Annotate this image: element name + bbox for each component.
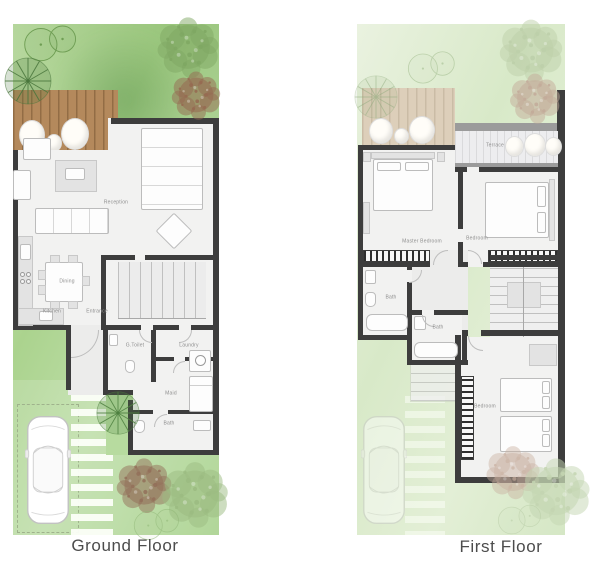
exterior-stair bbox=[410, 360, 456, 402]
maid-bed bbox=[189, 376, 213, 412]
room-label-reception: Reception bbox=[104, 201, 128, 206]
room-label-bedroom-front: Bedroom bbox=[466, 237, 488, 242]
wall-segment bbox=[358, 262, 430, 267]
room-label-maid: Maid bbox=[165, 392, 177, 397]
sofa bbox=[35, 208, 109, 234]
tree-palm-icon bbox=[95, 390, 141, 436]
beanbag bbox=[524, 133, 546, 157]
beanbag bbox=[545, 137, 562, 156]
wall-segment bbox=[101, 255, 106, 330]
room-label-bath: Bath bbox=[163, 422, 174, 427]
stove-burner bbox=[20, 279, 25, 284]
wash-basin bbox=[109, 334, 118, 346]
room-label-bath-shared: Bath bbox=[432, 326, 443, 331]
wall-segment bbox=[458, 167, 463, 229]
chair bbox=[50, 255, 60, 263]
room-label-terrace: Terrace bbox=[486, 144, 504, 149]
wall-segment bbox=[358, 145, 455, 150]
wardrobe bbox=[461, 376, 474, 460]
wash-basin bbox=[193, 420, 211, 431]
pillow bbox=[542, 396, 550, 409]
pillow bbox=[405, 162, 429, 171]
tree-outline-icon bbox=[495, 502, 547, 538]
chair bbox=[68, 301, 78, 309]
wall-segment bbox=[145, 255, 219, 260]
beanbag bbox=[61, 118, 89, 150]
room-label-g-toilet: G.Toilet bbox=[126, 344, 145, 349]
dresser bbox=[529, 344, 557, 366]
wall-segment bbox=[358, 145, 363, 340]
stove-burner bbox=[26, 272, 31, 277]
pillow bbox=[377, 162, 401, 171]
pillow bbox=[542, 381, 550, 394]
bed-headboard bbox=[371, 152, 435, 159]
ground-floor-plan: Reception Dining Kitchen Entrance G.Toil… bbox=[13, 24, 219, 535]
room-label-laundry: Laundry bbox=[179, 344, 198, 349]
room-label-entrance: Entrance bbox=[86, 310, 108, 315]
chair bbox=[38, 270, 46, 280]
wall-segment bbox=[191, 325, 219, 330]
ground-floor-caption: Ground Floor bbox=[35, 536, 215, 556]
wall-segment bbox=[108, 325, 141, 330]
armchair bbox=[23, 138, 51, 160]
room-label-dining: Dining bbox=[59, 280, 74, 285]
room-label-master-bedroom: Master Bedroom bbox=[402, 240, 442, 245]
first-floor-caption: First Floor bbox=[411, 537, 591, 557]
wall-segment bbox=[490, 255, 558, 260]
kitchen-sink bbox=[20, 244, 31, 260]
toilet bbox=[365, 292, 376, 307]
wash-basin bbox=[365, 270, 376, 284]
toilet bbox=[125, 360, 135, 373]
beanbag bbox=[369, 118, 393, 144]
wall-segment bbox=[483, 262, 558, 267]
wall-segment bbox=[156, 357, 174, 361]
chair bbox=[68, 255, 78, 263]
bathtub bbox=[414, 342, 458, 358]
room-label-kitchen: Kitchen bbox=[43, 310, 61, 315]
table-decor bbox=[65, 168, 85, 180]
wall-segment bbox=[103, 325, 108, 395]
dresser bbox=[363, 202, 370, 234]
chair bbox=[38, 285, 46, 295]
nightstand bbox=[363, 152, 371, 162]
nightstand bbox=[437, 152, 445, 162]
wall-segment bbox=[407, 262, 412, 270]
first-floor-plan: Terrace Master Bedroom Bedroom Bath Bath… bbox=[357, 24, 565, 535]
wardrobe bbox=[363, 250, 430, 262]
stair-landing bbox=[507, 282, 541, 308]
armchair bbox=[13, 170, 31, 200]
tree-palm-icon bbox=[3, 56, 53, 106]
tree-foliage-icon bbox=[165, 64, 227, 126]
wall-segment bbox=[462, 330, 467, 365]
wall-segment bbox=[434, 310, 468, 315]
tree-outline-icon bbox=[405, 48, 461, 88]
sofa-large bbox=[141, 128, 203, 210]
wall-segment bbox=[479, 167, 558, 172]
bed-headboard bbox=[549, 179, 555, 241]
wall-segment bbox=[105, 255, 135, 260]
room-label-bath-master: Bath bbox=[385, 296, 396, 301]
wall-segment bbox=[455, 335, 461, 483]
beanbag bbox=[409, 116, 435, 144]
stove-burner bbox=[26, 279, 31, 284]
car-top-view bbox=[25, 410, 71, 530]
stove-burner bbox=[20, 272, 25, 277]
wall-segment bbox=[213, 118, 219, 455]
tree-foliage-icon bbox=[503, 66, 567, 130]
wall-segment bbox=[153, 325, 179, 330]
washer-drum bbox=[195, 355, 206, 366]
wall-segment bbox=[358, 335, 412, 340]
room-label-bedroom-back: Bedroom bbox=[474, 405, 496, 410]
wall-segment bbox=[558, 127, 565, 483]
wall-segment bbox=[458, 262, 468, 267]
beanbag bbox=[394, 128, 409, 144]
pillow bbox=[537, 212, 546, 233]
wall-segment bbox=[412, 310, 422, 315]
tree-palm-icon bbox=[353, 74, 399, 120]
pillow bbox=[542, 419, 550, 432]
chair bbox=[82, 276, 90, 286]
staircase bbox=[118, 262, 206, 318]
pillow bbox=[537, 186, 546, 207]
wall-segment bbox=[481, 330, 560, 336]
car-top-view-faded bbox=[361, 410, 407, 530]
stair-rail bbox=[118, 318, 206, 319]
bathtub bbox=[366, 314, 408, 331]
bed-pillow-line bbox=[190, 385, 212, 386]
stepping-stones-faded bbox=[405, 396, 445, 535]
beanbag bbox=[505, 136, 524, 157]
floor-plans-canvas: Reception Dining Kitchen Entrance G.Toil… bbox=[0, 0, 600, 572]
